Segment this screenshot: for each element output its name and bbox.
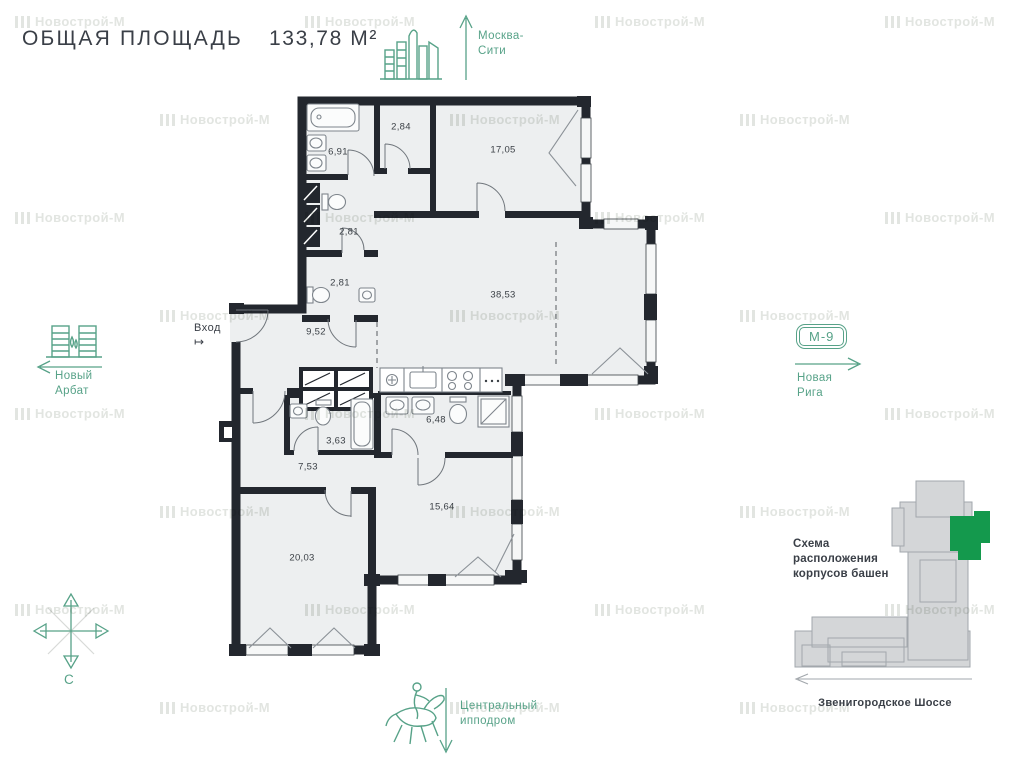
floorplan-canvas — [0, 0, 1013, 768]
scheme-caption: Схема расположения корпусов башен — [793, 537, 889, 582]
moscow-city-icon — [380, 30, 442, 79]
title-label: ОБЩАЯ ПЛОЩАДЬ — [22, 27, 243, 50]
room-area-wc-1: 2,81 — [339, 227, 359, 238]
apartment-plan — [219, 96, 658, 656]
compass-north-label: С — [64, 672, 74, 687]
entrance-label: Вход ↦ — [194, 322, 221, 349]
room-area-bedroom-3: 20,03 — [289, 553, 314, 564]
room-area-wardrobe: 2,84 — [391, 122, 411, 133]
floorplan-page: ОБЩАЯ ПЛОЩАДЬ133,78 М² — [0, 0, 1013, 768]
road-arrow — [796, 674, 972, 684]
room-area-corridor: 7,53 — [298, 462, 318, 473]
room-area-hall: 9,52 — [306, 327, 326, 338]
novaya-riga-arrow — [795, 358, 860, 370]
vent-shafts — [301, 183, 320, 247]
hippodrome-arrow — [440, 688, 452, 752]
moscow-city-arrow — [460, 16, 472, 80]
direction-label-new-arbat: Новый Арбат — [55, 369, 93, 399]
hippodrome-icon — [386, 683, 444, 744]
wall-niche — [224, 427, 232, 438]
direction-label-hippodrome: Центральный ипподром — [460, 699, 537, 729]
compass-icon — [34, 594, 108, 668]
room-area-bathroom-2: 3,63 — [326, 436, 346, 447]
room-area-bathroom-3: 6,48 — [426, 415, 446, 426]
entrance-arrow-symbol: ↦ — [194, 335, 221, 349]
room-area-bathroom-1: 6,91 — [328, 147, 348, 158]
tower-scheme — [795, 481, 990, 684]
direction-label-novaya-riga: Новая Рига — [797, 371, 832, 401]
m9-badge-label: М-9 — [799, 327, 844, 346]
room-area-bedroom-2: 15,64 — [429, 502, 454, 513]
room-area-wc-2: 2,81 — [330, 278, 350, 289]
road-label: Звенигородское Шоссе — [790, 697, 980, 709]
room-area-living-kitchen: 38,53 — [490, 290, 515, 301]
direction-label-moscow-city: Москва- Сити — [478, 29, 524, 59]
m9-road-badge: М-9 — [796, 324, 847, 349]
page-title: ОБЩАЯ ПЛОЩАДЬ133,78 М² — [22, 27, 378, 51]
new-arbat-icon — [46, 326, 102, 357]
room-area-bedroom-1: 17,05 — [490, 145, 515, 156]
title-value: 133,78 М² — [269, 27, 378, 50]
entry-opening — [230, 310, 241, 342]
